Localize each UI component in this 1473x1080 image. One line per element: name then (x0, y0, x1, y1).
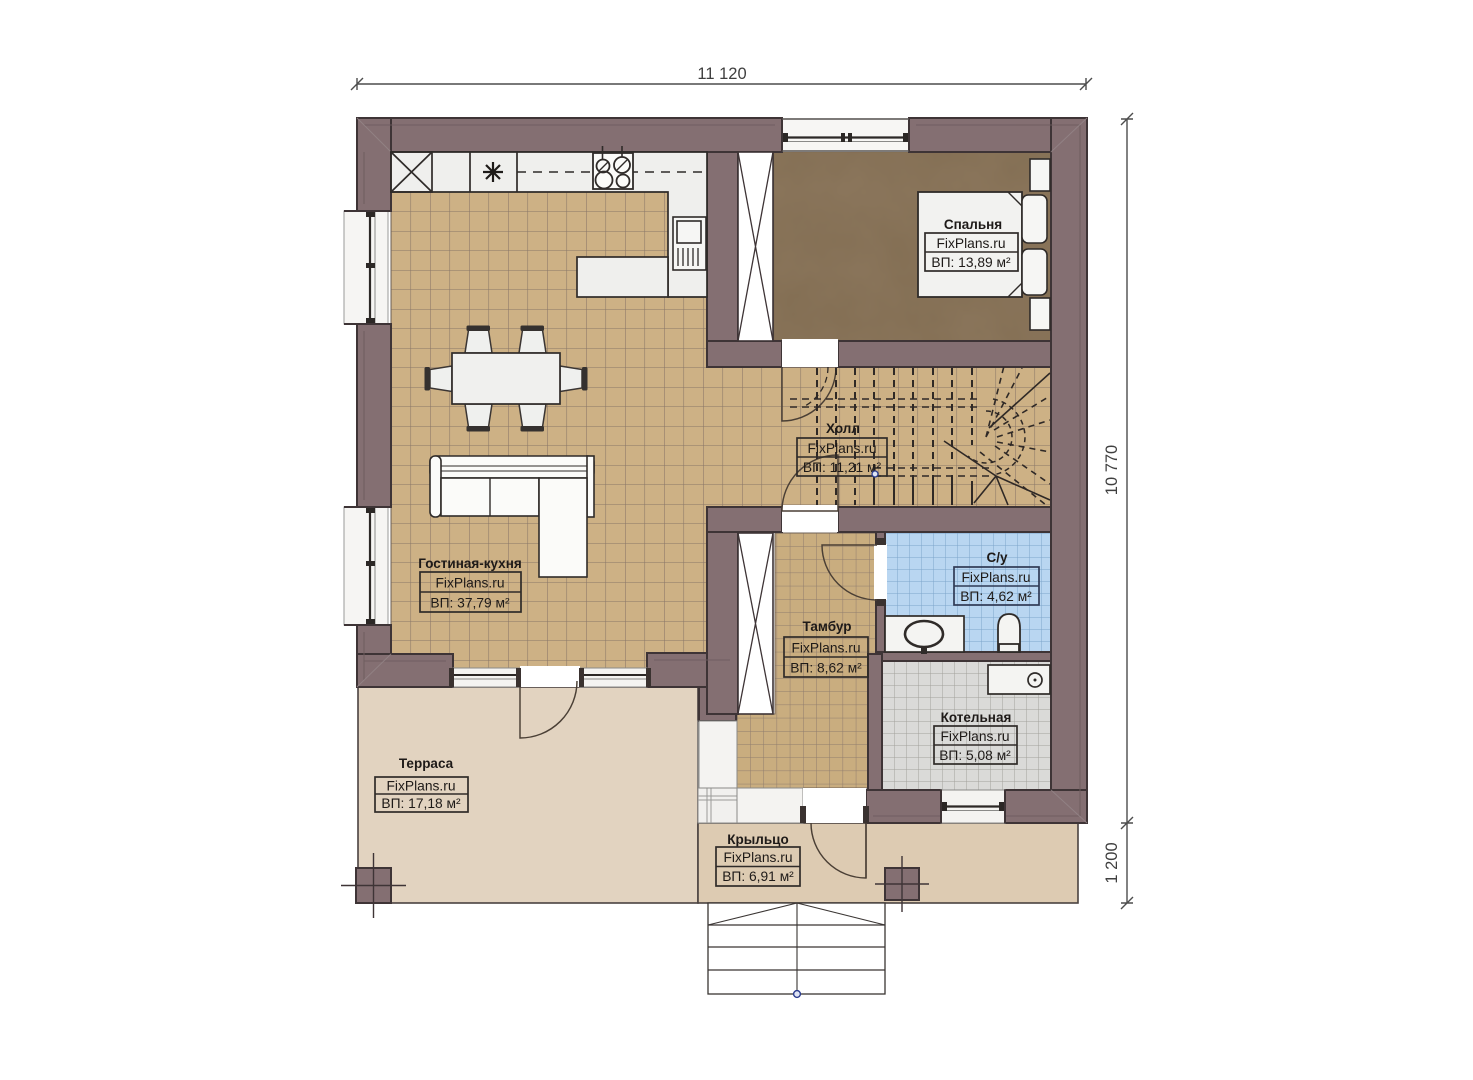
svg-text:FixPlans.ru: FixPlans.ru (386, 779, 455, 794)
svg-text:ВП: 11,21 м²: ВП: 11,21 м² (803, 460, 882, 475)
svg-text:FixPlans.ru: FixPlans.ru (807, 441, 876, 456)
svg-text:FixPlans.ru: FixPlans.ru (791, 641, 860, 656)
svg-text:Тамбур: Тамбур (803, 619, 852, 634)
svg-text:Терраса: Терраса (399, 756, 454, 771)
svg-text:ВП: 6,91 м²: ВП: 6,91 м² (722, 869, 794, 884)
svg-text:FixPlans.ru: FixPlans.ru (936, 236, 1005, 251)
svg-text:Спальня: Спальня (944, 217, 1002, 232)
svg-text:Крыльцо: Крыльцо (727, 832, 788, 847)
svg-text:Гостиная-кухня: Гостиная-кухня (418, 556, 521, 571)
svg-text:Холл: Холл (826, 421, 860, 436)
svg-text:ВП: 37,79 м²: ВП: 37,79 м² (430, 596, 510, 611)
svg-text:10 770: 10 770 (1103, 445, 1121, 495)
svg-text:1 200: 1 200 (1103, 842, 1121, 883)
svg-text:ВП: 8,62 м²: ВП: 8,62 м² (790, 661, 862, 676)
svg-text:FixPlans.ru: FixPlans.ru (961, 570, 1030, 585)
svg-text:11 120: 11 120 (697, 65, 746, 83)
svg-text:С/у: С/у (986, 550, 1008, 565)
svg-text:ВП: 5,08 м²: ВП: 5,08 м² (939, 748, 1011, 763)
svg-text:ВП: 17,18 м²: ВП: 17,18 м² (381, 796, 461, 811)
svg-text:FixPlans.ru: FixPlans.ru (723, 850, 792, 865)
svg-text:FixPlans.ru: FixPlans.ru (940, 729, 1009, 744)
svg-text:ВП: 4,62 м²: ВП: 4,62 м² (960, 589, 1032, 604)
svg-text:Котельная: Котельная (941, 710, 1012, 725)
svg-text:ВП: 13,89 м²: ВП: 13,89 м² (931, 255, 1011, 270)
svg-text:FixPlans.ru: FixPlans.ru (435, 576, 504, 591)
